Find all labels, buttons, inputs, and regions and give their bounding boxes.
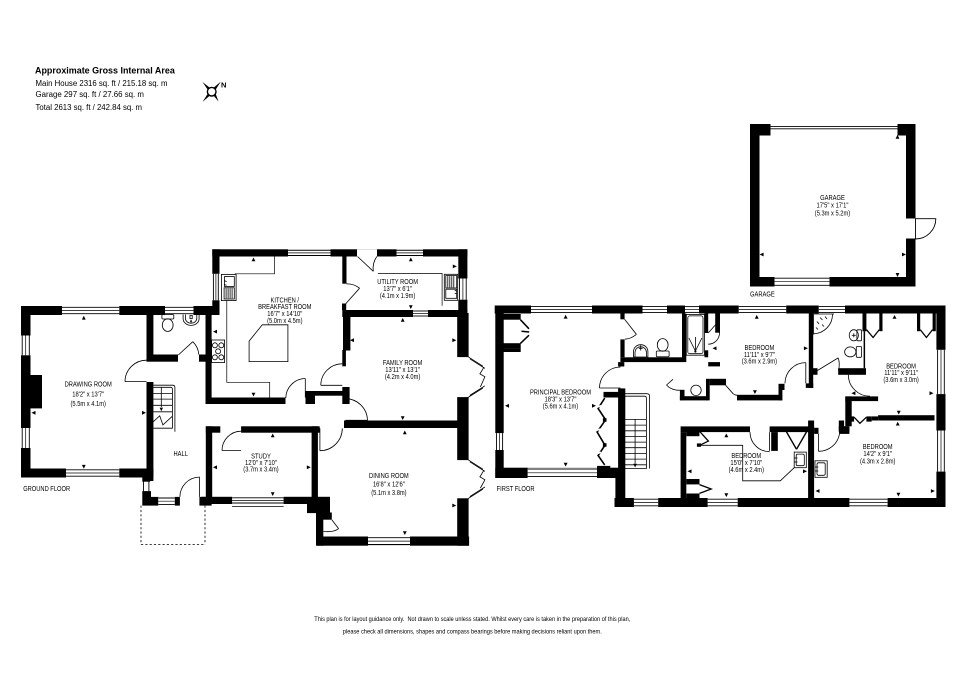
svg-text:UTILITY ROOM: UTILITY ROOM <box>377 279 418 286</box>
svg-text:Total 2613 sq. ft / 242.84 sq.: Total 2613 sq. ft / 242.84 sq. m <box>36 103 143 112</box>
svg-text:BEDROOM: BEDROOM <box>863 444 893 451</box>
svg-text:18'2" x 13'7": 18'2" x 13'7" <box>72 391 104 398</box>
svg-text:BEDROOM: BEDROOM <box>731 453 761 460</box>
svg-text:(5.5m x 4.1m): (5.5m x 4.1m) <box>71 401 106 408</box>
svg-text:HALL: HALL <box>174 451 188 458</box>
svg-text:(3.6m x 3.0m): (3.6m x 3.0m) <box>883 377 918 384</box>
svg-text:(4.6m x 2.4m): (4.6m x 2.4m) <box>729 467 764 474</box>
svg-text:17'5" x 17'1": 17'5" x 17'1" <box>817 203 849 210</box>
svg-text:GROUND FLOOR: GROUND FLOOR <box>23 486 70 493</box>
svg-text:PRINCIPAL BEDROOM: PRINCIPAL BEDROOM <box>530 389 591 396</box>
svg-text:Approximate Gross Internal Are: Approximate Gross Internal Area <box>35 66 176 76</box>
svg-text:(4.1m x 1.9m): (4.1m x 1.9m) <box>380 293 415 300</box>
svg-text:(3.7m x 3.4m): (3.7m x 3.4m) <box>243 467 278 474</box>
svg-text:FIRST FLOOR: FIRST FLOOR <box>497 486 535 493</box>
svg-text:N: N <box>221 80 226 89</box>
svg-text:Main House 2316 sq. ft / 215.1: Main House 2316 sq. ft / 215.18 sq. m <box>36 79 168 88</box>
svg-text:DINING ROOM: DINING ROOM <box>369 473 409 480</box>
svg-text:(3.6m x 2.9m): (3.6m x 2.9m) <box>742 359 777 366</box>
svg-text:18'3" x 13'7": 18'3" x 13'7" <box>545 396 577 403</box>
svg-text:(4.3m x 2.8m): (4.3m x 2.8m) <box>860 458 895 465</box>
svg-text:(5.1m x 3.8m): (5.1m x 3.8m) <box>371 490 406 497</box>
svg-text:This plan is for layout guidan: This plan is for layout guidance only. N… <box>314 616 630 623</box>
svg-text:GARAGE: GARAGE <box>750 291 775 298</box>
svg-text:(5.6m x 4.1m): (5.6m x 4.1m) <box>543 403 578 410</box>
svg-text:FAMILY ROOM: FAMILY ROOM <box>383 360 423 367</box>
svg-text:DRAWING ROOM: DRAWING ROOM <box>65 382 112 389</box>
svg-text:GARAGE: GARAGE <box>820 195 845 202</box>
svg-text:16'7" x 14'10": 16'7" x 14'10" <box>267 311 303 318</box>
svg-text:15'0" x 7'10": 15'0" x 7'10" <box>730 460 762 467</box>
svg-text:16'8" x 12'6": 16'8" x 12'6" <box>373 481 405 488</box>
svg-text:14'2" x 9'1": 14'2" x 9'1" <box>863 451 892 458</box>
svg-text:please check all dimensions, s: please check all dimensions, shapes and … <box>343 628 602 635</box>
svg-text:(4.2m x 4.0m): (4.2m x 4.0m) <box>385 374 420 381</box>
svg-text:(5.3m x 5.2m): (5.3m x 5.2m) <box>815 211 850 218</box>
svg-text:13'11" x 13'1": 13'11" x 13'1" <box>385 367 420 374</box>
svg-text:Garage 297 sq. ft / 27.66 sq.: Garage 297 sq. ft / 27.66 sq. m <box>36 90 145 99</box>
svg-text:(5.0m x 4.5m): (5.0m x 4.5m) <box>267 318 302 325</box>
